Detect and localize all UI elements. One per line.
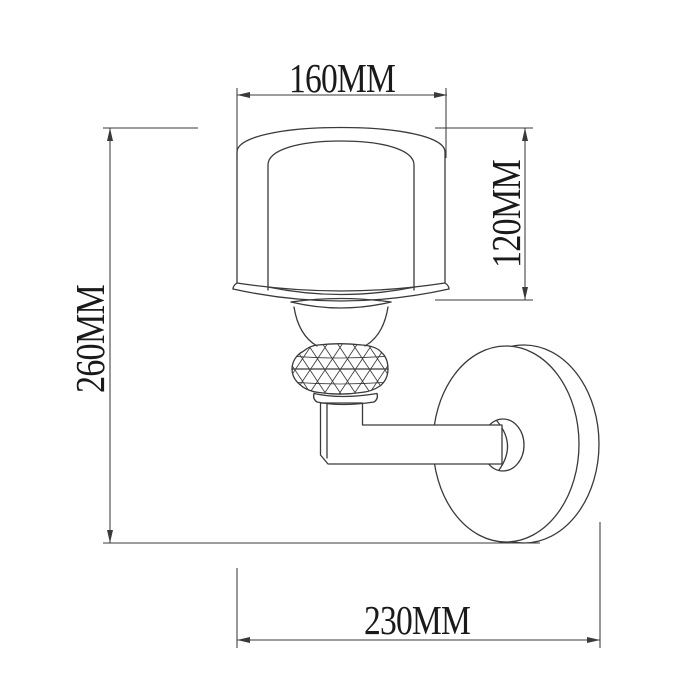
width-label: 160MM (289, 55, 395, 101)
dimension-width: 160MM (237, 55, 447, 158)
shade-rim-right-edge (445, 283, 449, 289)
neck-right-side (365, 307, 388, 346)
depth-arrow-left (237, 637, 250, 643)
shade-height-arrow-bottom (522, 287, 528, 300)
neck-left-side (294, 307, 317, 346)
dimension-depth: 230MM (237, 522, 600, 648)
shade-inner-glass (268, 141, 414, 290)
depth-label: 230MM (364, 597, 470, 643)
shade-height-arrow-top (522, 128, 528, 141)
total-height-label: 260MM (67, 285, 113, 393)
width-arrow-right (434, 92, 447, 98)
dimension-shade-height: 120MM (435, 128, 533, 300)
total-height-arrow-bottom (107, 530, 113, 543)
depth-arrow-right (587, 637, 600, 643)
shade-rim-left-edge (233, 283, 237, 289)
product-dimension-diagram: 160MM 120MM 260MM 230MM (0, 0, 700, 700)
shade-height-label: 120MM (483, 160, 529, 268)
width-arrow-left (237, 92, 250, 98)
sconce-technical-drawing: 160MM 120MM 260MM 230MM (0, 0, 700, 700)
neck-lip-bottom (291, 302, 391, 308)
collar-left-edge (314, 394, 317, 403)
lamp-shade (233, 128, 449, 302)
total-height-arrow-top (107, 128, 113, 141)
collar-right-edge (374, 394, 377, 403)
shade-fitter-neck (291, 299, 391, 347)
